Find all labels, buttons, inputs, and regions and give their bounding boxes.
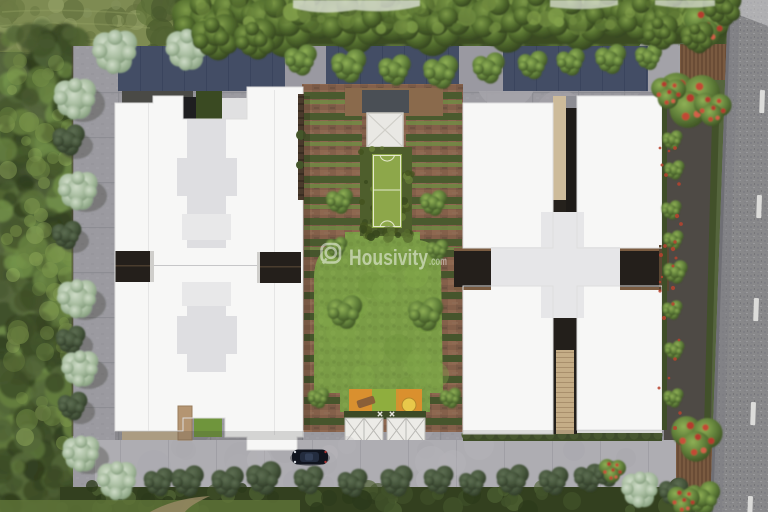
svg-text:.com: .com bbox=[429, 254, 447, 268]
svg-text:Housivity: Housivity bbox=[349, 245, 428, 270]
